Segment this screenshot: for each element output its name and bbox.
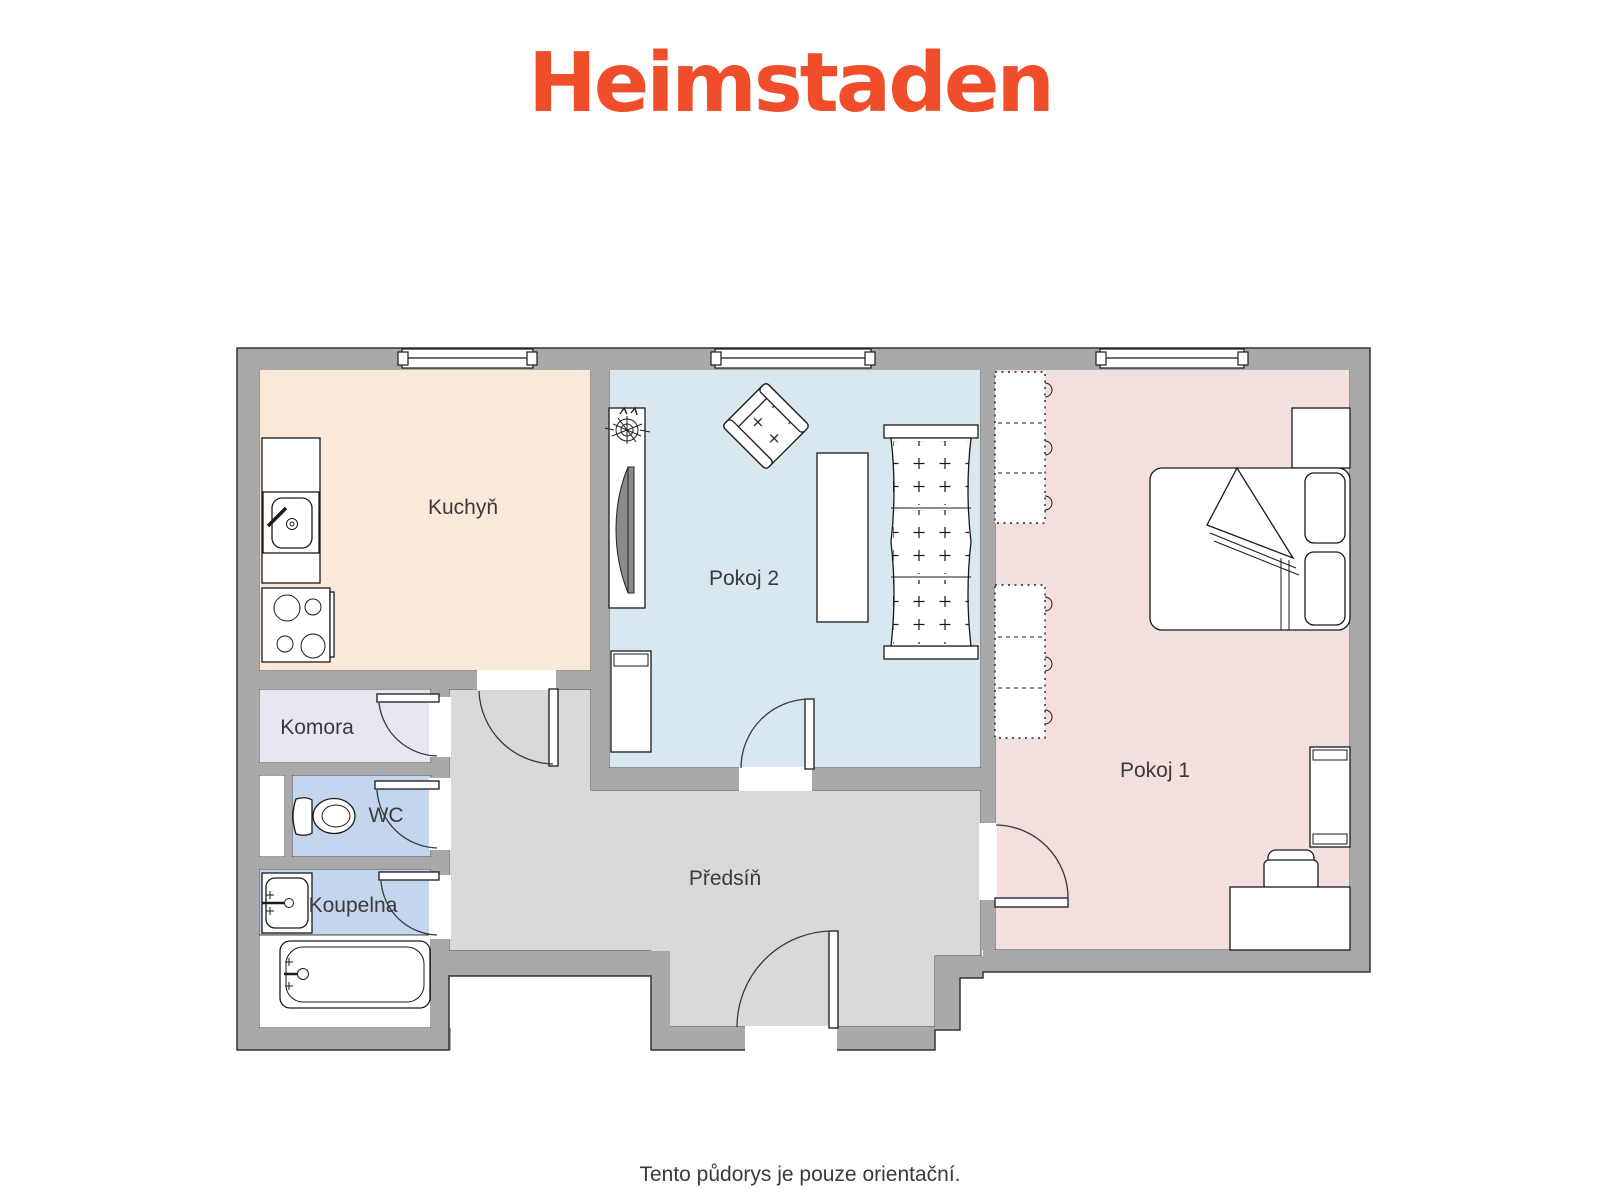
window-icon-pokoj1 <box>1096 349 1248 368</box>
label-komora: Komora <box>280 716 354 739</box>
windows <box>398 349 1248 368</box>
label-koupelna: Koupelna <box>309 894 398 917</box>
label-pokoj1: Pokoj 1 <box>1120 759 1190 782</box>
stove-icon <box>262 588 334 662</box>
table-icon <box>817 453 868 622</box>
bed-icon <box>1150 468 1350 630</box>
wardrobe-icon-top <box>995 372 1052 523</box>
wardrobe-icon-bottom <box>995 585 1052 738</box>
label-pokoj2: Pokoj 2 <box>709 567 779 590</box>
floorplan-page: Heimstaden <box>0 0 1600 1200</box>
label-wc: WC <box>369 804 404 827</box>
heimstaden-logo: Heimstaden <box>0 36 1580 131</box>
label-kuchyn: Kuchyň <box>428 496 498 519</box>
bathtub-icon <box>280 941 430 1008</box>
kitchen-sink-icon <box>263 492 319 553</box>
washbasin-icon <box>262 873 312 933</box>
wc-shaft <box>259 775 285 857</box>
desk-icon <box>1230 887 1350 950</box>
label-predsin: Předsíň <box>689 867 761 890</box>
cabinet-icon <box>611 651 651 752</box>
window-icon-kuchyn <box>398 349 537 368</box>
sofa-icon <box>884 425 978 659</box>
shelf-icon <box>1310 747 1350 847</box>
nightstand-icon <box>1292 408 1350 468</box>
disclaimer-text: Tento půdorys je pouze orientační. <box>0 1163 1600 1187</box>
chair-icon <box>1264 850 1318 890</box>
toilet-icon <box>293 798 355 836</box>
floorplan: Kuchyň Pokoj 2 Pokoj 1 Komora WC Koupeln… <box>0 0 1600 1200</box>
window-icon-pokoj2 <box>711 349 875 368</box>
